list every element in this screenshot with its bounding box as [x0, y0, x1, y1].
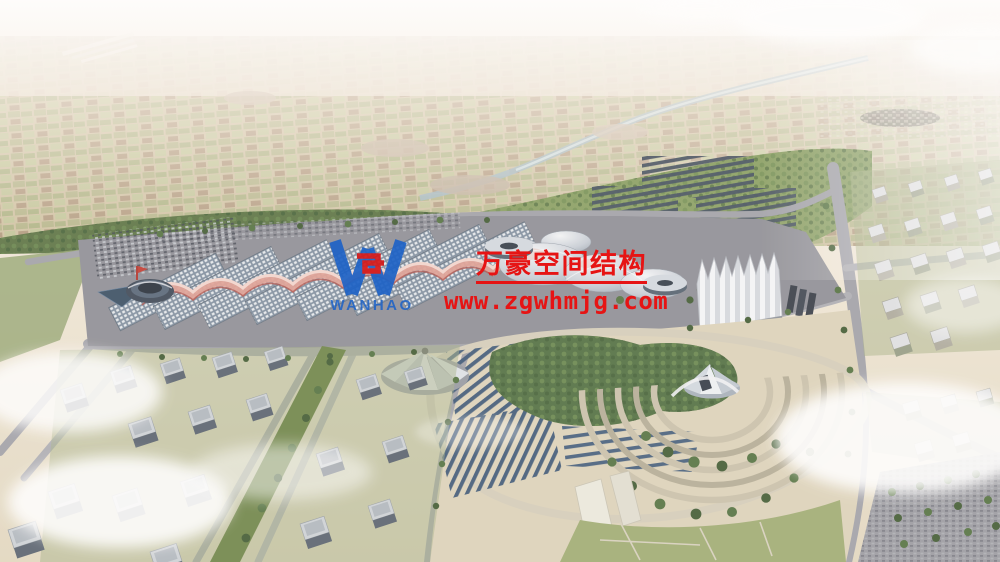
w-logo-icon	[327, 238, 415, 298]
aerial-rendering: WANHAO 万豪空间结构 www.zgwhmjg.com	[0, 0, 1000, 562]
wanhao-w-logo	[327, 238, 415, 298]
watermark-company-name: 万豪空间结构	[476, 250, 647, 284]
watermark-website: www.zgwhmjg.com	[444, 287, 668, 315]
watermark-logo-text: WANHAO	[322, 297, 422, 314]
